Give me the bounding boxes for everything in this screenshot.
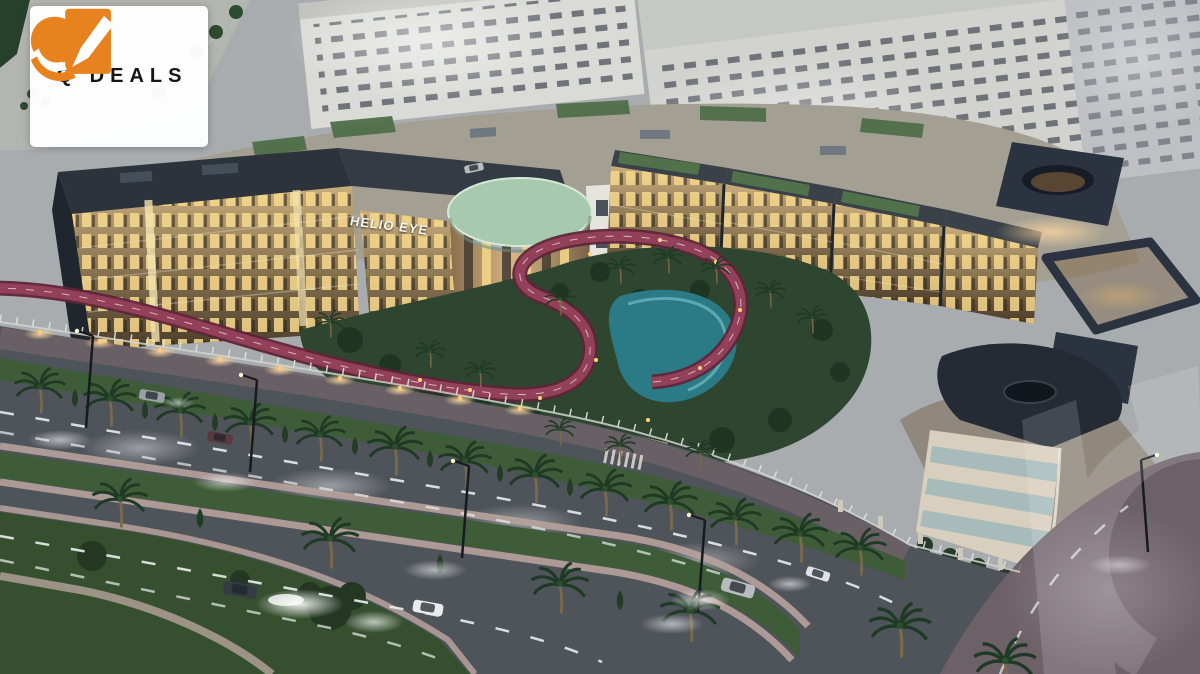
- aerial-render-scene: HELIO EYE Q DEALS: [0, 0, 1200, 674]
- q-deals-logo-icon: [30, 6, 118, 82]
- logo-card: Q DEALS: [30, 6, 208, 147]
